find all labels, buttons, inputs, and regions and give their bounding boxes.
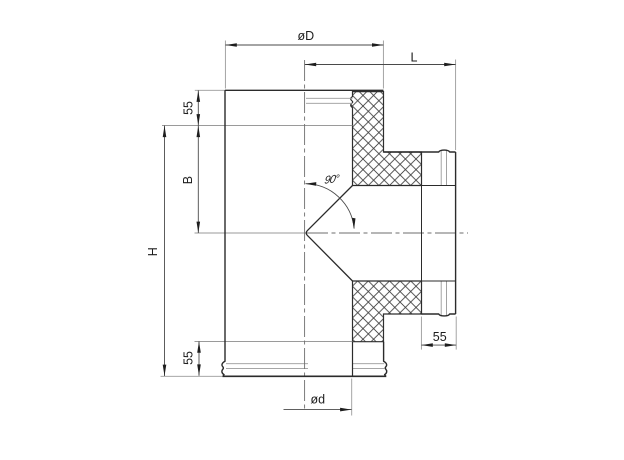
svg-text:90°: 90° [324,173,341,187]
svg-text:55: 55 [433,330,447,344]
svg-text:øD: øD [298,29,315,43]
svg-text:B: B [181,176,195,184]
svg-text:L: L [411,51,418,65]
svg-text:ød: ød [311,393,326,407]
svg-text:H: H [146,247,160,256]
svg-text:55: 55 [181,351,195,365]
svg-text:55: 55 [181,101,195,115]
